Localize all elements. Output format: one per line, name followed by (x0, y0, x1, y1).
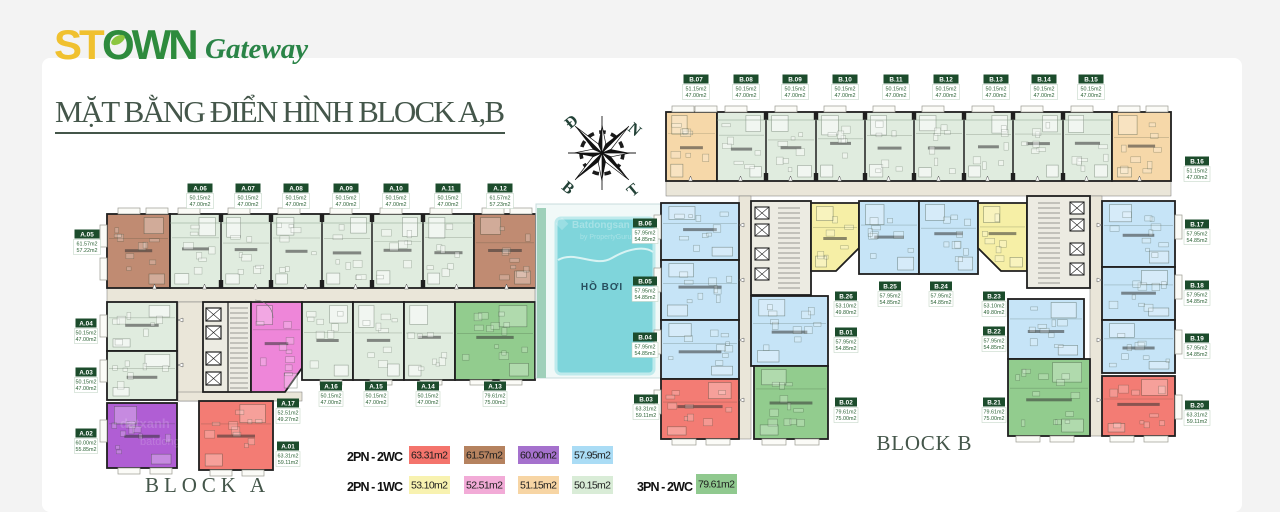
svg-text:50.15m2: 50.15m2 (386, 196, 407, 202)
svg-text:B.09: B.09 (788, 76, 802, 83)
svg-text:57.95m2: 57.95m2 (880, 294, 901, 300)
svg-text:53.10m2: 53.10m2 (836, 304, 857, 310)
svg-text:54.85m2: 54.85m2 (1187, 352, 1208, 358)
svg-text:B.26: B.26 (839, 293, 853, 300)
svg-text:57.95m2: 57.95m2 (1187, 232, 1208, 238)
svg-text:47.00m2: 47.00m2 (835, 93, 856, 99)
svg-text:B.10: B.10 (838, 76, 852, 83)
svg-text:57.95m2: 57.95m2 (635, 231, 656, 237)
svg-text:57.95m2: 57.95m2 (635, 345, 656, 351)
svg-text:59.11m2: 59.11m2 (1187, 419, 1208, 425)
svg-text:A.05: A.05 (80, 231, 94, 238)
svg-text:75.00m2: 75.00m2 (836, 416, 857, 422)
svg-text:50.15m2: 50.15m2 (785, 87, 806, 93)
svg-text:50.15m2: 50.15m2 (736, 87, 757, 93)
svg-text:B.16: B.16 (1190, 158, 1204, 165)
svg-text:B.25: B.25 (883, 283, 897, 290)
svg-text:2PN - 2WC: 2PN - 2WC (347, 450, 403, 464)
svg-text:A.02: A.02 (79, 430, 93, 437)
svg-text:B.06: B.06 (638, 220, 652, 227)
svg-text:57.95m2: 57.95m2 (836, 340, 857, 346)
svg-text:54.85m2: 54.85m2 (1187, 238, 1208, 244)
svg-text:54.85m2: 54.85m2 (1187, 299, 1208, 305)
svg-text:50.15m2: 50.15m2 (321, 394, 342, 400)
svg-text:55.85m2: 55.85m2 (76, 447, 97, 453)
svg-text:60.00m2: 60.00m2 (76, 441, 97, 447)
svg-text:50.15m2: 50.15m2 (835, 87, 856, 93)
svg-text:54.85m2: 54.85m2 (984, 345, 1005, 351)
svg-text:A.01: A.01 (281, 443, 295, 450)
svg-text:49.80m2: 49.80m2 (984, 310, 1005, 316)
svg-text:50.15m2: 50.15m2 (418, 394, 439, 400)
svg-text:57.95m2: 57.95m2 (635, 289, 656, 295)
svg-text:47.00m2: 47.00m2 (76, 337, 97, 343)
svg-text:A.07: A.07 (241, 185, 255, 192)
svg-text:57.95m2: 57.95m2 (574, 450, 611, 462)
svg-text:54.85m2: 54.85m2 (931, 300, 952, 306)
svg-text:BLOCK B: BLOCK B (877, 431, 972, 455)
svg-text:Gateway: Gateway (205, 33, 308, 65)
svg-text:57.23m2: 57.23m2 (490, 202, 511, 208)
svg-text:75.00m2: 75.00m2 (984, 416, 1005, 422)
svg-text:47.00m2: 47.00m2 (1081, 93, 1102, 99)
svg-text:61.57m2: 61.57m2 (77, 242, 98, 248)
svg-text:A.10: A.10 (389, 185, 403, 192)
svg-text:50.15m2: 50.15m2 (936, 87, 957, 93)
svg-text:51.15m2: 51.15m2 (1187, 169, 1208, 175)
svg-text:B.02: B.02 (839, 399, 853, 406)
svg-text:57.22m2: 57.22m2 (77, 248, 98, 254)
svg-text:61.57m2: 61.57m2 (466, 450, 503, 462)
svg-text:47.00m2: 47.00m2 (886, 93, 907, 99)
svg-text:50.15m2: 50.15m2 (190, 196, 211, 202)
svg-text:ST: ST (54, 21, 105, 68)
svg-text:47.00m2: 47.00m2 (76, 386, 97, 392)
svg-text:A.15: A.15 (369, 383, 383, 390)
svg-text:50.15m2: 50.15m2 (986, 87, 1007, 93)
svg-text:61.57m2: 61.57m2 (490, 196, 511, 202)
svg-text:51.15m2: 51.15m2 (520, 480, 557, 492)
svg-text:54.85m2: 54.85m2 (635, 351, 656, 357)
svg-text:Batdongsan: Batdongsan (572, 220, 630, 231)
svg-text:53.10m2: 53.10m2 (984, 304, 1005, 310)
svg-text:B.23: B.23 (987, 293, 1001, 300)
svg-text:63.31m2: 63.31m2 (278, 454, 299, 460)
svg-text:47.00m2: 47.00m2 (386, 202, 407, 208)
svg-text:57.95m2: 57.95m2 (931, 294, 952, 300)
svg-text:54.85m2: 54.85m2 (635, 295, 656, 301)
svg-text:50.15m2: 50.15m2 (366, 394, 387, 400)
svg-text:47.00m2: 47.00m2 (686, 93, 707, 99)
svg-text:50.15m2: 50.15m2 (76, 380, 97, 386)
svg-text:B.22: B.22 (987, 328, 1001, 335)
svg-text:59.11m2: 59.11m2 (278, 460, 299, 466)
svg-text:B.07: B.07 (689, 76, 703, 83)
svg-text:79.61m2: 79.61m2 (836, 410, 857, 416)
svg-text:B.14: B.14 (1037, 76, 1051, 83)
svg-text:47.00m2: 47.00m2 (1187, 175, 1208, 181)
svg-text:47.00m2: 47.00m2 (986, 93, 1007, 99)
svg-text:50.15m2: 50.15m2 (336, 196, 357, 202)
svg-text:B.13: B.13 (989, 76, 1003, 83)
svg-text:47.00m2: 47.00m2 (438, 202, 459, 208)
svg-text:47.00m2: 47.00m2 (785, 93, 806, 99)
svg-text:63.31m2: 63.31m2 (636, 407, 657, 413)
svg-text:A.06: A.06 (193, 185, 207, 192)
svg-text:59.11m2: 59.11m2 (636, 413, 657, 419)
svg-text:batdongsan: batdongsan (140, 436, 198, 448)
svg-text:50.15m2: 50.15m2 (76, 331, 97, 337)
svg-text:54.85m2: 54.85m2 (880, 300, 901, 306)
svg-text:52.51m2: 52.51m2 (466, 480, 503, 492)
svg-text:B.03: B.03 (639, 396, 653, 403)
svg-text:47.00m2: 47.00m2 (1034, 93, 1055, 99)
svg-text:B.19: B.19 (1190, 335, 1204, 342)
svg-text:3PN - 2WC: 3PN - 2WC (637, 480, 693, 494)
svg-text:57.95m2: 57.95m2 (1187, 346, 1208, 352)
svg-text:60.00m2: 60.00m2 (520, 450, 557, 462)
svg-text:B.20: B.20 (1190, 402, 1204, 409)
svg-text:75.00m2: 75.00m2 (485, 400, 506, 406)
svg-text:54.85m2: 54.85m2 (836, 346, 857, 352)
svg-text:52.51m2: 52.51m2 (278, 411, 299, 417)
svg-text:47.00m2: 47.00m2 (286, 202, 307, 208)
svg-text:50.15m2: 50.15m2 (438, 196, 459, 202)
svg-text:57.95m2: 57.95m2 (1187, 293, 1208, 299)
svg-text:B.12: B.12 (939, 76, 953, 83)
svg-text:B.15: B.15 (1084, 76, 1098, 83)
svg-text:A.14: A.14 (421, 383, 435, 390)
svg-text:50.15m2: 50.15m2 (238, 196, 259, 202)
svg-text:50.15m2: 50.15m2 (1034, 87, 1055, 93)
svg-text:A.08: A.08 (289, 185, 303, 192)
svg-text:50.15m2: 50.15m2 (1081, 87, 1102, 93)
svg-text:B.04: B.04 (638, 334, 652, 341)
svg-text:2PN - 1WC: 2PN - 1WC (347, 480, 403, 494)
svg-text:HỒ BƠI: HỒ BƠI (581, 280, 623, 293)
svg-text:A.03: A.03 (79, 369, 93, 376)
svg-text:63.31m2: 63.31m2 (411, 450, 448, 462)
svg-text:A.16: A.16 (324, 383, 338, 390)
svg-text:A.17: A.17 (281, 400, 295, 407)
svg-text:A.13: A.13 (488, 383, 502, 390)
svg-text:47.00m2: 47.00m2 (736, 93, 757, 99)
svg-text:B.24: B.24 (934, 283, 948, 290)
svg-text:A.12: A.12 (493, 185, 507, 192)
svg-text:79.61m2: 79.61m2 (485, 394, 506, 400)
svg-text:B.01: B.01 (839, 329, 853, 336)
svg-text:47.00m2: 47.00m2 (936, 93, 957, 99)
svg-text:B.18: B.18 (1190, 282, 1204, 289)
svg-text:51.15m2: 51.15m2 (686, 87, 707, 93)
svg-text:by PropertyGuru: by PropertyGuru (580, 234, 631, 241)
svg-text:A.04: A.04 (79, 320, 93, 327)
svg-text:57.95m2: 57.95m2 (984, 339, 1005, 345)
svg-text:47.00m2: 47.00m2 (321, 400, 342, 406)
svg-text:B.21: B.21 (987, 399, 1001, 406)
svg-text:53.10m2: 53.10m2 (411, 480, 448, 492)
svg-text:B.05: B.05 (638, 278, 652, 285)
svg-text:47.00m2: 47.00m2 (190, 202, 211, 208)
svg-text:MẶT BẰNG ĐIỂN HÌNH BLOCK A,B: MẶT BẰNG ĐIỂN HÌNH BLOCK A,B (55, 94, 505, 129)
svg-text:B.08: B.08 (739, 76, 753, 83)
svg-text:54.85m2: 54.85m2 (635, 237, 656, 243)
svg-text:49.80m2: 49.80m2 (836, 310, 857, 316)
svg-text:50.15m2: 50.15m2 (886, 87, 907, 93)
svg-text:B.11: B.11 (889, 76, 903, 83)
svg-text:49.27m2: 49.27m2 (278, 417, 299, 423)
svg-text:47.00m2: 47.00m2 (238, 202, 259, 208)
svg-text:79.61m2: 79.61m2 (698, 479, 735, 491)
svg-text:47.00m2: 47.00m2 (418, 400, 439, 406)
svg-text:B.17: B.17 (1190, 221, 1204, 228)
svg-text:datxanh: datxanh (120, 416, 170, 431)
svg-text:47.00m2: 47.00m2 (366, 400, 387, 406)
svg-text:50.15m2: 50.15m2 (574, 480, 611, 492)
svg-text:A.11: A.11 (441, 185, 455, 192)
svg-text:A.09: A.09 (339, 185, 353, 192)
svg-text:79.61m2: 79.61m2 (984, 410, 1005, 416)
svg-text:47.00m2: 47.00m2 (336, 202, 357, 208)
svg-text:50.15m2: 50.15m2 (286, 196, 307, 202)
svg-text:63.31m2: 63.31m2 (1187, 413, 1208, 419)
